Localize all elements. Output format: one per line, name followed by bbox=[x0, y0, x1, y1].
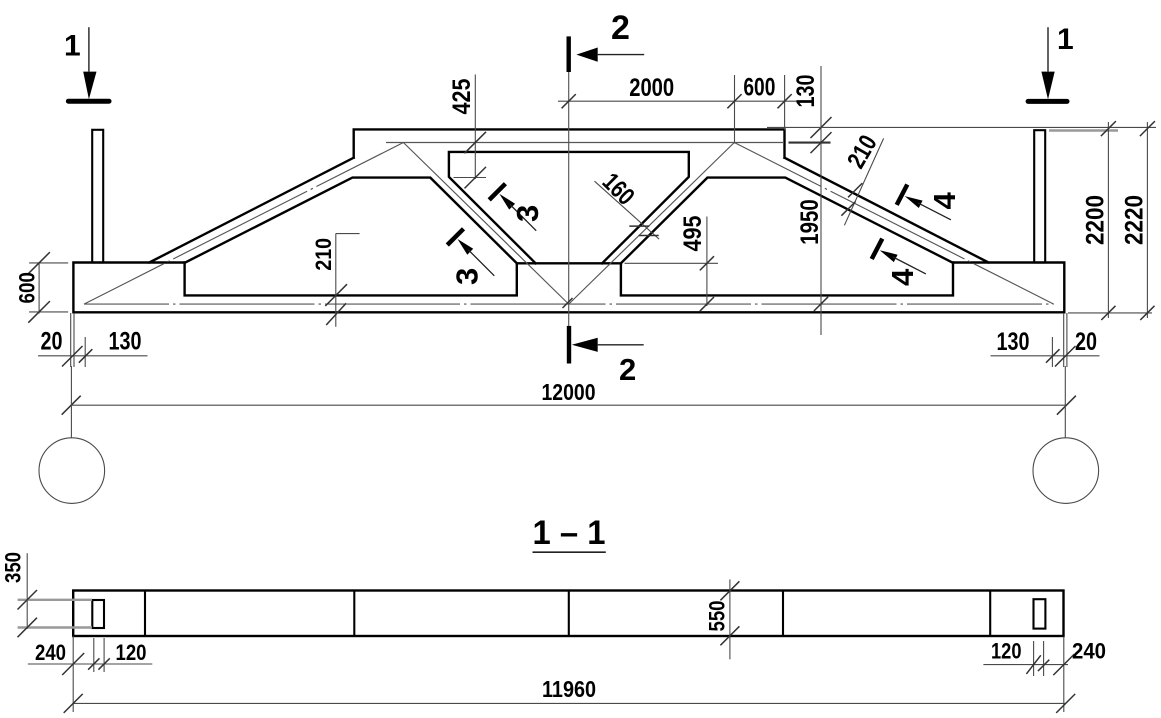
svg-text:3: 3 bbox=[510, 205, 545, 222]
svg-text:130: 130 bbox=[792, 75, 820, 108]
svg-text:550: 550 bbox=[705, 601, 730, 632]
svg-text:4: 4 bbox=[885, 268, 920, 286]
svg-text:120: 120 bbox=[116, 640, 147, 665]
svg-text:120: 120 bbox=[991, 639, 1022, 664]
svg-text:1: 1 bbox=[64, 30, 81, 63]
svg-text:495: 495 bbox=[679, 215, 707, 251]
svg-text:2200: 2200 bbox=[1082, 195, 1110, 245]
svg-text:240: 240 bbox=[1072, 639, 1106, 664]
svg-text:20: 20 bbox=[41, 328, 63, 356]
svg-text:3: 3 bbox=[450, 268, 485, 285]
svg-text:12000: 12000 bbox=[542, 379, 596, 405]
svg-text:2000: 2000 bbox=[629, 74, 674, 102]
svg-text:130: 130 bbox=[997, 328, 1030, 356]
svg-text:210: 210 bbox=[311, 238, 336, 271]
svg-text:2: 2 bbox=[611, 9, 630, 47]
svg-text:4: 4 bbox=[927, 192, 962, 210]
svg-text:1: 1 bbox=[1057, 23, 1074, 56]
svg-text:130: 130 bbox=[109, 328, 142, 356]
svg-text:1950: 1950 bbox=[796, 199, 824, 245]
svg-text:425: 425 bbox=[448, 78, 476, 114]
svg-text:350: 350 bbox=[1, 552, 26, 583]
svg-text:20: 20 bbox=[1075, 328, 1097, 356]
svg-text:600: 600 bbox=[743, 74, 775, 102]
svg-text:2: 2 bbox=[619, 352, 636, 387]
svg-text:11960: 11960 bbox=[542, 676, 596, 702]
svg-text:600: 600 bbox=[15, 272, 40, 303]
svg-text:2220: 2220 bbox=[1121, 195, 1149, 245]
svg-text:240: 240 bbox=[35, 640, 66, 665]
svg-text:1 – 1: 1 – 1 bbox=[533, 514, 606, 552]
